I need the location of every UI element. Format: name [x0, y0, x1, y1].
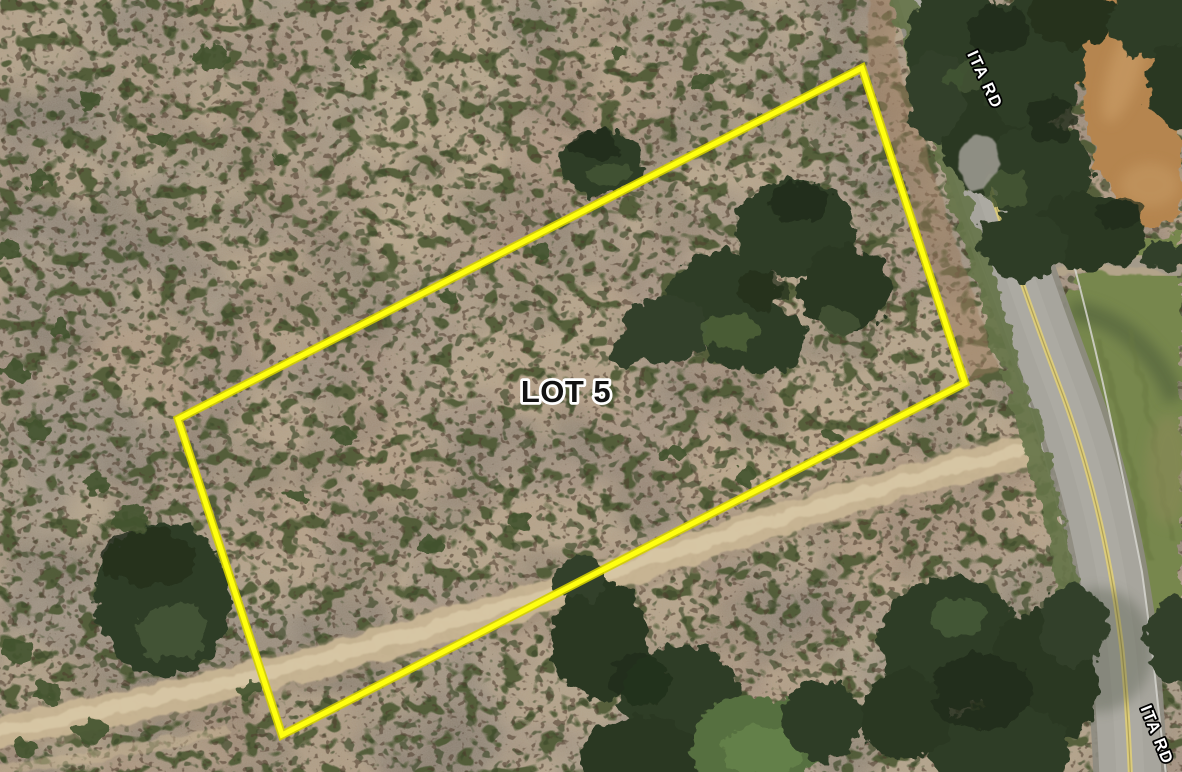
- lot-label: LOT 5: [521, 374, 611, 409]
- aerial-photo: LOT 5 ITA RD ITA RD: [0, 0, 1182, 772]
- canopy-gap-road-patch: [958, 136, 998, 188]
- aerial-photo-stage: LOT 5 ITA RD ITA RD: [0, 0, 1182, 772]
- tree-bottom-left: [95, 523, 231, 677]
